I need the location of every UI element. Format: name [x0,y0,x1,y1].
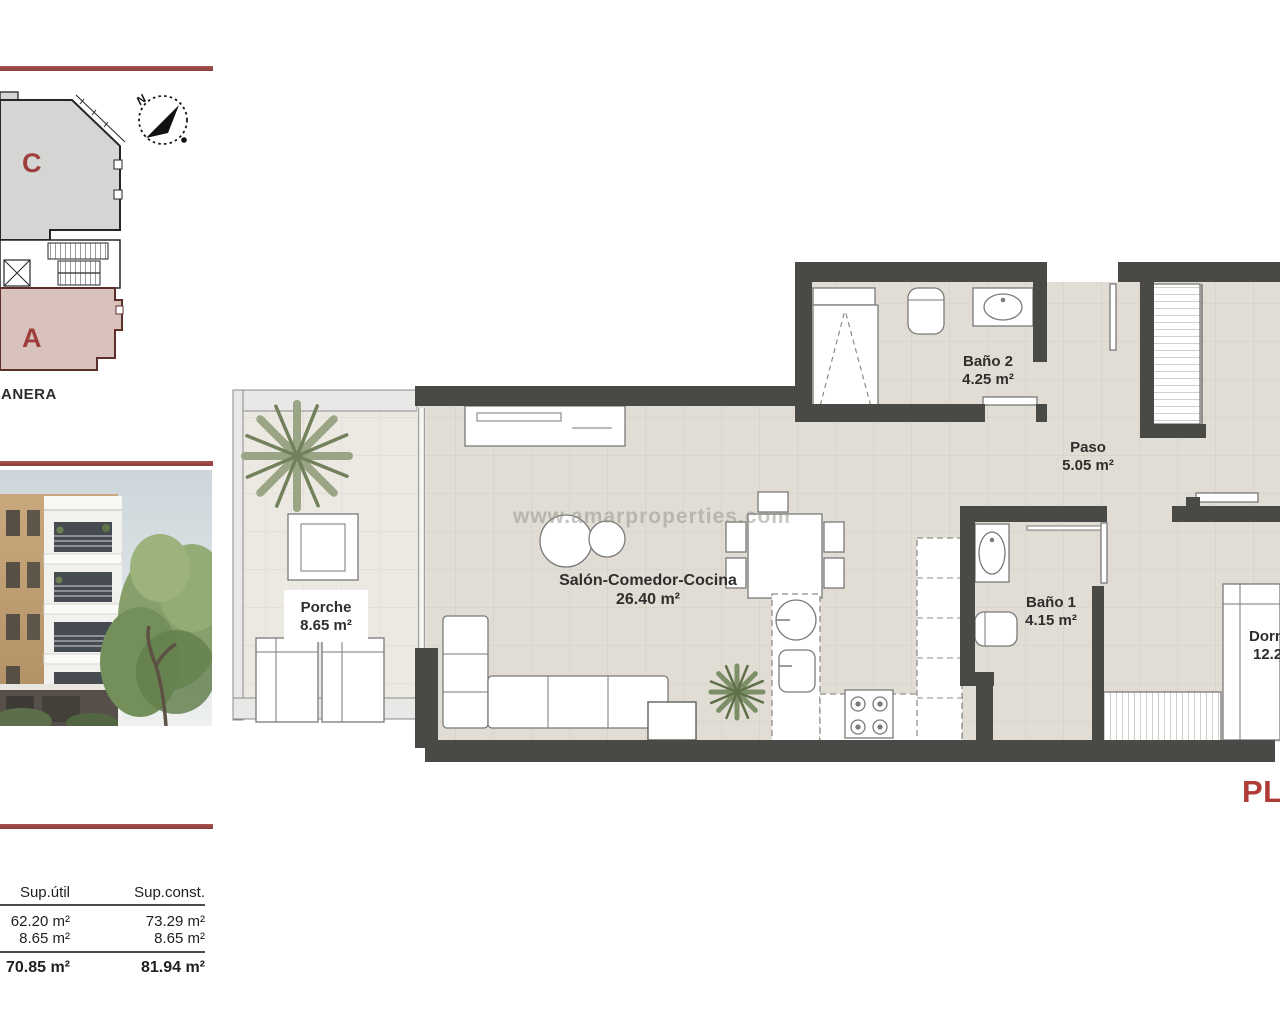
room-area-salon: 26.40 m² [616,591,680,608]
block-a-label: A [22,323,42,353]
dining-chair [824,558,844,588]
room-area-porche: 8.65 m² [300,617,352,634]
total-const-value: 81.94 m² [70,959,205,976]
room-label-dorm: Dorm [1249,628,1280,645]
col-header-sup-const: Sup.const. [70,884,205,901]
sofa-chaise [443,616,488,728]
room-label-porche: Porche [301,599,352,616]
site-plan-block-a: A [0,288,123,370]
sofa-seat [488,676,668,728]
room-label-paso: Paso [1070,439,1106,456]
bath1-shelf [1027,526,1103,530]
floor-plan-page: { "colors": { "accent_red": "#9c4744", "… [0,0,1280,1024]
kitchen-tall-units [917,538,962,742]
total-util-value: 70.85 m² [0,959,70,976]
tv-console [465,406,625,446]
entry-door-leaf [1110,284,1116,350]
site-plan-block-c: C [0,92,125,240]
room-area-paso: 5.05 m² [1062,457,1114,474]
porch-label-bg [284,590,368,642]
dining-chair [824,522,844,552]
plan-sheet-title: PLA [1242,774,1280,810]
const-value: 8.65 m² [70,930,205,947]
street-label: ANERA [1,386,57,403]
col-header-sup-util: Sup.útil [0,884,70,901]
porch-lounger [256,638,318,722]
areas-table: Sup.útil Sup.const. 62.20 m² 73.29 m² 8.… [0,884,205,976]
block-c-label: C [22,148,42,178]
porch-lounger [322,638,384,722]
bath1-door-leaf [1101,523,1107,583]
room-label-bano2: Baño 2 [963,353,1013,370]
table-total-row: 70.85 m² 81.94 m² [0,951,205,976]
bedroom-shelf [1196,493,1258,502]
living-plant [711,666,763,718]
apartment-floor-plan: Porche 8.65 m² Salón-Comedor-Cocina 26.4… [228,235,1280,770]
divider-rule-middle [0,461,213,466]
room-label-salon: Salón-Comedor-Cocina [559,572,737,589]
bath2-toilet [908,288,944,334]
divider-rule-bottom [0,824,213,829]
room-area-dorm: 12.2 [1253,646,1280,663]
room-label-bano1: Baño 1 [1026,594,1076,611]
kitchen-basin [779,650,815,692]
room-area-bano2: 4.25 m² [962,371,1014,388]
table-row: 62.20 m² 73.29 m² [0,913,205,930]
compass-icon: N [134,91,187,144]
areas-table-header: Sup.útil Sup.const. [0,884,205,906]
building-photo [0,470,212,726]
util-value: 62.20 m² [0,913,70,930]
util-value: 8.65 m² [0,930,70,947]
bath1-toilet [975,612,1017,646]
bedroom-radiator [1103,692,1221,742]
wall-column [648,702,696,740]
bath2-shower [813,305,878,418]
table-row: 8.65 m² 8.65 m² [0,930,205,947]
watermark: www.amarproperties.com [512,505,791,528]
room-area-bano1: 4.15 m² [1025,612,1077,629]
divider-rule-top [0,66,213,71]
site-plan: C A N [0,80,215,410]
bath2-door-leaf [983,397,1037,405]
glass-wall [417,408,426,650]
porch-palm-plant [245,404,349,508]
bath2-shelf [813,288,875,305]
const-value: 73.29 m² [70,913,205,930]
site-plan-core [0,240,120,288]
hall-closet [1152,284,1200,424]
